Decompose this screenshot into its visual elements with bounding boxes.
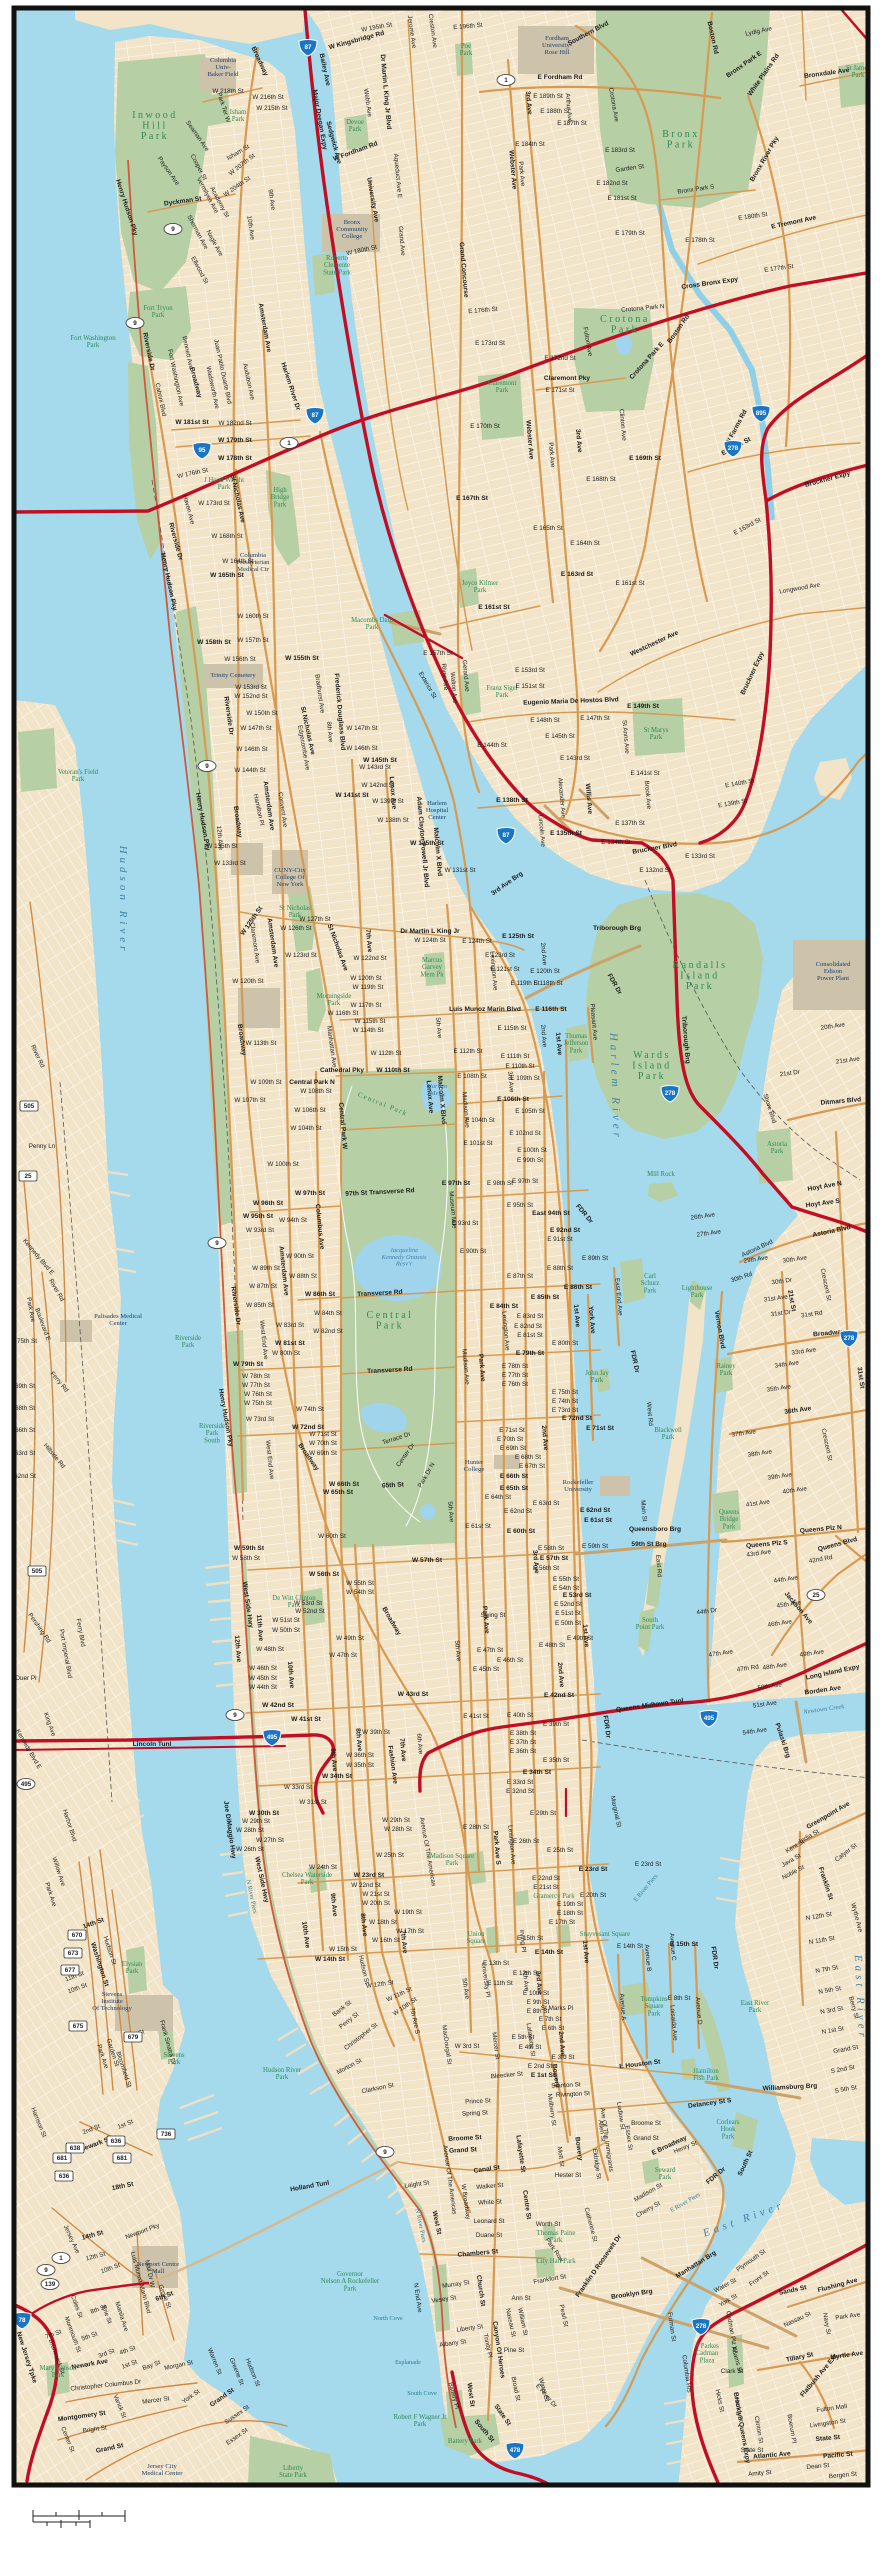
map-label: E 100th St	[517, 1147, 547, 1154]
map-label: E 38th St	[510, 1730, 536, 1737]
svg-text:87: 87	[502, 832, 510, 839]
map-label: W 28th St	[384, 1826, 412, 1833]
map-label: W 100th St	[267, 1161, 298, 1168]
map-label: E 168th St	[586, 476, 616, 483]
map-label: W 165th St	[210, 572, 245, 579]
map-label: W 83rd St	[276, 1322, 304, 1329]
map-label: E 135th St	[550, 830, 583, 837]
map-label: Stuyvesant Square	[580, 1931, 630, 1938]
map-label: E 148th St	[530, 717, 560, 724]
map-label: W 30th St	[249, 1810, 280, 1817]
svg-text:636: 636	[111, 2138, 122, 2145]
map-label: E 189th St	[533, 93, 563, 100]
map-label: E 62nd St	[504, 1508, 532, 1515]
route-shield-1: 1	[280, 438, 298, 449]
svg-text:638: 638	[70, 2145, 81, 2152]
svg-text:478: 478	[510, 2447, 521, 2454]
map-label: E 54th St	[553, 1585, 579, 1592]
map-label: W 73rd St	[246, 1416, 274, 1423]
route-shield-9: 9	[198, 761, 216, 772]
svg-text:278: 278	[665, 1090, 676, 1097]
map-label: W 131st St	[445, 867, 476, 874]
map-label: W 110th St	[376, 1067, 410, 1074]
map-label: E 182nd St	[596, 180, 627, 187]
map-label: W 146th St	[346, 745, 377, 752]
map-label: E 112th St	[454, 1048, 483, 1055]
map-label: W 86th St	[305, 1291, 336, 1298]
map-label: Penny Ln	[29, 1143, 56, 1150]
map-label: E 132nd St	[639, 867, 670, 874]
map-label: W 19th St	[394, 1909, 422, 1916]
map-label: MarcusGarveyMem Pk	[420, 957, 444, 978]
map-label: E 52nd St	[554, 1601, 582, 1608]
map-label: W 69th St	[309, 1450, 337, 1457]
map-label: E 23rd St	[579, 1866, 608, 1873]
manhattan-map: InwoodHillParkIshamParkColumbiaUniv-Bake…	[0, 0, 882, 2560]
map-label: E 37th St	[510, 1739, 536, 1746]
svg-text:78: 78	[18, 2317, 26, 2324]
map-label: E 99th St	[517, 1157, 543, 1164]
svg-text:9: 9	[44, 2267, 48, 2274]
map-label: W 26th St	[236, 1846, 264, 1853]
map-label: W 116th St	[328, 1010, 359, 1017]
map-label: E 108th St	[457, 1073, 487, 1080]
map-label: W 156th St	[224, 656, 255, 663]
map-label: RockefellerUniversity	[563, 1479, 595, 1493]
svg-text:679: 679	[128, 2034, 139, 2041]
map-label: W 77th St	[242, 1382, 270, 1389]
map-label: Hester St	[555, 2172, 581, 2179]
park-gramercy	[515, 1890, 529, 1906]
map-label: Queensboro Brg	[629, 1526, 681, 1533]
map-label: E 95th St	[507, 1202, 533, 1209]
map-label: W 42nd St	[262, 1702, 295, 1709]
map-label: E 11th St	[487, 1980, 513, 1987]
map-label: W 71st St	[309, 1431, 337, 1438]
route-shield-1: 1	[52, 2253, 70, 2264]
map-label: E 35th St	[543, 1757, 569, 1764]
map-label: W 39th St	[362, 1729, 390, 1736]
map-label: E 64th St	[485, 1494, 511, 1501]
map-label: E 149th St	[627, 703, 660, 710]
map-label: W 139th St	[372, 798, 403, 805]
map-label: E 29th St	[530, 1810, 556, 1817]
map-label: Luis Munoz Marin Blvd	[449, 1006, 521, 1013]
map-label: W 93rd St	[246, 1227, 274, 1234]
map-label: 63rd St	[15, 1450, 36, 1457]
map-label: E 147th St	[580, 715, 610, 722]
svg-text:139: 139	[45, 2281, 56, 2288]
map-label: W 89th St	[252, 1265, 280, 1272]
map-label: W 182nd St	[219, 420, 252, 427]
map-label: Spring St	[462, 2109, 488, 2117]
map-label: Hudson River	[117, 845, 129, 955]
map-label: E 116th St	[535, 1006, 567, 1013]
map-label: W 33rd St	[284, 1784, 312, 1791]
svg-text:278: 278	[696, 2323, 707, 2330]
svg-text:95: 95	[198, 447, 206, 454]
map-label: E 78th St	[502, 1363, 528, 1370]
map-label: W 115th St	[355, 1018, 386, 1025]
svg-text:1: 1	[504, 77, 508, 84]
map-label: W 59th St	[234, 1545, 265, 1552]
map-label: E 79th St	[516, 1350, 545, 1357]
map-label: W 104th St	[290, 1125, 321, 1132]
svg-text:9: 9	[215, 1240, 219, 1247]
svg-text:677: 677	[65, 1967, 76, 1974]
map-label: 0	[31, 2498, 35, 2507]
route-shield-495: 495	[17, 1779, 35, 1790]
route-shield-9: 9	[164, 224, 182, 235]
map-label: E 74th St	[552, 1398, 578, 1405]
map-label: E 34th St	[523, 1769, 552, 1776]
map-label: E 145th St	[545, 733, 575, 740]
park-veterans-field	[18, 728, 57, 792]
map-label: W 109th St	[250, 1079, 281, 1086]
map-label: E 22nd St	[532, 1875, 560, 1882]
route-shield-505: 505	[20, 1101, 38, 1111]
map-label: W 85th St	[246, 1302, 274, 1309]
map-label: 59th St Brg	[631, 1541, 666, 1548]
block-columbia-university	[238, 988, 280, 1028]
map-label: E 161st St	[615, 580, 644, 587]
map-label: W 60th St	[318, 1533, 346, 1540]
map-label: W 14th St	[315, 1956, 346, 1963]
map-label: E 61st St	[465, 1523, 491, 1530]
map-label: W 179th St	[218, 437, 253, 444]
map-label: E 33rd St	[507, 1779, 534, 1786]
map-label: W 122nd St	[354, 955, 387, 962]
svg-text:681: 681	[57, 2155, 68, 2162]
map-label: E 138th St	[496, 797, 529, 804]
map-label: E 144th St	[477, 742, 507, 749]
map-label: Ann St	[512, 2295, 531, 2302]
map-label: HarlemHospitalCenter	[426, 800, 449, 821]
svg-text:278: 278	[728, 445, 739, 452]
map-label: E 62nd St	[580, 1507, 611, 1514]
route-shield-673: 673	[64, 1948, 82, 1958]
map-label: RobertoClementeState Park	[323, 255, 351, 276]
map-label: W 113th St	[246, 1040, 277, 1047]
map-label: Clark St	[721, 2368, 744, 2375]
map-label: E 71st St	[499, 1427, 525, 1434]
map-label: Battery Park	[448, 2438, 483, 2445]
map-label: E 81st St	[517, 1332, 543, 1339]
map-label: E 59th St	[582, 1543, 608, 1550]
svg-text:495: 495	[21, 1781, 32, 1788]
map-label: E 36th St	[510, 1748, 536, 1755]
route-shield-25: 25	[19, 1171, 37, 1181]
map-label: W 47th St	[329, 1652, 357, 1659]
map-label: E 48th St	[539, 1642, 565, 1649]
map-label: E 153rd St	[515, 667, 545, 674]
map-label: W 82nd St	[313, 1328, 343, 1335]
map-label: W 146th St	[236, 746, 267, 753]
map-label: E 184th St	[515, 141, 545, 148]
map-label: DevoePark	[346, 119, 364, 133]
route-shield-736: 736	[157, 2129, 175, 2139]
map-label: W 25th St	[376, 1852, 404, 1859]
svg-text:673: 673	[68, 1950, 79, 1957]
svg-text:670: 670	[72, 1932, 83, 1939]
map-label: Claremont Pky	[544, 375, 591, 382]
map-label: W 143rd St	[359, 764, 391, 771]
map-label: E 23rd St	[635, 1861, 662, 1868]
map-label: E 2nd St	[528, 2063, 552, 2070]
map-label: E 115th St	[498, 1025, 527, 1032]
map-label: E 179th St	[615, 230, 645, 237]
map-label: E 70th St	[497, 1436, 523, 1443]
map-label: E 86th St	[564, 1284, 593, 1291]
svg-text:9: 9	[133, 320, 137, 327]
map-label: E 42nd St	[544, 1692, 575, 1699]
map-label: W 66th St	[329, 1481, 360, 1488]
map-label: W 84th St	[314, 1310, 342, 1317]
map-label: W 54th St	[346, 1589, 374, 1596]
map-label: E 151st St	[515, 683, 544, 690]
map-label: E 125th St	[502, 933, 535, 940]
map-label: E 92nd St	[550, 1227, 581, 1234]
map-label: W 29th St	[382, 1817, 410, 1824]
map-label: W 70th St	[309, 1440, 337, 1447]
map-label: E 169th St	[629, 455, 662, 462]
map-label: Duer Pl	[16, 1675, 37, 1682]
map-label: W 112th St	[371, 1050, 402, 1057]
map-label: E 53rd St	[563, 1592, 592, 1599]
map-label: E 68th St	[515, 1454, 541, 1461]
map-label: Prince St	[465, 2097, 491, 2105]
map-label: Grand St	[449, 2146, 478, 2154]
map-label: W 51st St	[272, 1617, 300, 1624]
route-shield-636: 636	[55, 2171, 73, 2181]
map-label: E 133rd St	[685, 853, 715, 860]
svg-text:736: 736	[161, 2131, 172, 2138]
route-shield-505: 505	[28, 1566, 46, 1576]
map-label: E 106th St	[497, 1096, 530, 1103]
svg-text:675: 675	[73, 2023, 84, 2030]
route-shield-638: 638	[66, 2143, 84, 2153]
map-label: W 49th St	[336, 1635, 364, 1642]
map-label: E 77th St	[502, 1372, 528, 1379]
map-label: E 18th St	[557, 1910, 583, 1917]
map-label: E 118th St	[534, 980, 563, 987]
map-label: W 56th St	[309, 1571, 340, 1578]
route-shield-636: 636	[107, 2136, 125, 2146]
svg-text:495: 495	[267, 1734, 278, 1741]
map-label: E 87th St	[507, 1273, 533, 1280]
map-label: E 167th St	[456, 495, 489, 502]
map-label: W 216th St	[252, 94, 283, 101]
map-label: E 93rd St	[452, 1220, 479, 1227]
park-stuyvesant	[556, 1924, 571, 1948]
svg-text:505: 505	[24, 1103, 35, 1110]
svg-text:9: 9	[171, 226, 175, 233]
map-label: E 25th St	[547, 1847, 573, 1854]
map-label: E 163rd St	[561, 571, 594, 578]
map-label: E 90th St	[460, 1248, 486, 1255]
park-astoria	[756, 1128, 793, 1184]
route-shield-139: 139	[41, 2279, 59, 2290]
map-label: W 21st St	[362, 1891, 390, 1898]
map-label: St Marks Pl	[541, 2005, 573, 2012]
map-label: W 74th St	[296, 1406, 324, 1413]
map-label: W 215th St	[256, 105, 287, 112]
map-label: North Cove	[373, 2315, 403, 2322]
map-label: W 158th St	[197, 639, 232, 646]
map-label: E 80th St	[552, 1340, 578, 1347]
map-label: W 90th St	[286, 1253, 314, 1260]
map-label: W 55th St	[346, 1580, 374, 1587]
map-label: Cathedral Pky	[320, 1067, 364, 1074]
map-label: E 124th St	[462, 938, 492, 945]
map-label: E 134th St	[601, 839, 631, 846]
map-label: E 120th St	[530, 968, 560, 975]
map-label: E 102nd St	[509, 1130, 540, 1137]
map-label: Esplanade	[395, 2359, 421, 2366]
map-label: East 94th St	[532, 1210, 571, 1217]
map-label: W 45th St	[249, 1675, 277, 1682]
map-label: E 97th St	[442, 1180, 471, 1187]
map-label: E 89th St	[582, 1255, 608, 1262]
svg-text:278: 278	[844, 1335, 855, 1342]
route-shield-681: 681	[113, 2153, 131, 2163]
map-label: W 23rd St	[354, 1872, 385, 1879]
map-label: W 29th St	[242, 1818, 270, 1825]
map-label: W 126th St	[280, 925, 311, 932]
map-label: E 181st St	[607, 195, 636, 202]
map-label: W 24th St	[309, 1864, 337, 1871]
map-label: W 155th St	[285, 655, 320, 662]
map-label: W 120th St	[350, 975, 381, 982]
svg-text:9: 9	[233, 1712, 237, 1719]
route-shield-677: 677	[61, 1965, 79, 1975]
map-label: E 161st St	[478, 604, 510, 611]
route-shield-25: 25	[807, 1590, 825, 1601]
map-label: E 39th St	[543, 1721, 569, 1728]
map-label: White St	[478, 2198, 502, 2206]
map-label: Dr Martin L King Jr	[400, 928, 460, 935]
map-label: 69th St	[15, 1383, 35, 1390]
map-label: W 94th St	[279, 1217, 307, 1224]
map-label: W 168th St	[211, 533, 242, 540]
map-label: 62nd St	[14, 1473, 36, 1480]
map-label: E 97th St	[512, 1178, 538, 1185]
map-label: E 21st St	[533, 1884, 559, 1891]
map-label: W 145th St	[363, 757, 398, 764]
map-label: Leonard St	[474, 2218, 505, 2225]
map-label: W 78th St	[242, 1373, 270, 1380]
map-label: E 14th St	[617, 1943, 643, 1950]
map-label: W 123rd St	[285, 952, 317, 959]
map-label: W 114th St	[353, 1027, 384, 1034]
route-shield-675: 675	[69, 2021, 87, 2031]
route-shield-9: 9	[126, 318, 144, 329]
svg-text:505: 505	[32, 1568, 43, 1575]
route-shield-670: 670	[68, 1930, 86, 1940]
map-label: W 181st St	[175, 419, 209, 426]
map-label: W 15th St	[329, 1946, 357, 1953]
map-label: E 76th St	[502, 1381, 528, 1388]
route-shield-681: 681	[53, 2153, 71, 2163]
map-label: E 143rd St	[560, 755, 590, 762]
map-label: E 101st St	[463, 1140, 492, 1147]
map-label: W 44th St	[249, 1684, 277, 1691]
map-label: E 60th St	[507, 1528, 536, 1535]
map-label: 0.25	[72, 2498, 87, 2507]
map-label: E 141st St	[630, 770, 659, 777]
block-rockefeller-university	[600, 1476, 630, 1496]
map-label: HunterCollege	[464, 1459, 485, 1473]
map-label: E 40th St	[507, 1712, 533, 1719]
map-label: E 45th St	[473, 1666, 499, 1673]
map-label: E 28th St	[463, 1824, 489, 1831]
map-label: E 88th St	[547, 1265, 573, 1272]
map-label: W 96th St	[253, 1200, 284, 1207]
map-label: E 75th St	[552, 1389, 578, 1396]
map-label: E 82nd St	[514, 1323, 542, 1330]
map-label: W 87th St	[249, 1283, 277, 1290]
map-label: W 144th St	[234, 767, 265, 774]
map-label: E 20th St	[580, 1892, 606, 1899]
map-label: E 183rd St	[605, 147, 635, 154]
map-label: Worth St	[536, 2221, 561, 2228]
map-label: E 172nd St	[544, 355, 575, 362]
svg-text:25: 25	[24, 1173, 32, 1180]
map-label: E 165th St	[533, 525, 563, 532]
map-label: 66th St	[15, 1427, 35, 1434]
map-label: E 110th St	[506, 1063, 535, 1070]
map-label: W 127th St	[299, 916, 330, 923]
the-pond	[420, 1504, 436, 1520]
map-label: E 14th St	[535, 1949, 564, 1956]
map-label: BronxPark	[662, 129, 700, 151]
map-label: W 157th St	[237, 637, 268, 644]
map-label: W 164th St	[222, 558, 253, 565]
map-label: 0	[31, 2533, 35, 2542]
map-label: South Cove	[407, 2390, 437, 2397]
map-page: InwoodHillParkIshamParkColumbiaUniv-Bake…	[0, 0, 882, 2560]
map-label: 68th St	[15, 1405, 35, 1412]
map-label: Mill Rock	[647, 1171, 675, 1178]
map-label: W 50th St	[272, 1627, 300, 1634]
svg-text:1: 1	[59, 2255, 63, 2262]
svg-text:9: 9	[383, 2149, 387, 2156]
map-label: W 43rd St	[398, 1691, 429, 1698]
map-label: E 26th St	[513, 1838, 539, 1845]
map-label: 0.25	[55, 2533, 70, 2542]
map-label: E 57th St	[540, 1555, 569, 1562]
map-label: E 50th St	[555, 1620, 581, 1627]
map-label: W 147th St	[240, 725, 271, 732]
map-label: W 95th St	[243, 1213, 274, 1220]
map-label: E 105th St	[515, 1108, 545, 1115]
scale-bar	[33, 2510, 125, 2528]
svg-text:895: 895	[756, 410, 767, 417]
svg-text:1: 1	[287, 440, 291, 447]
map-label: E 47th St	[477, 1647, 503, 1654]
map-label: E 66th St	[500, 1473, 529, 1480]
map-label: W 41st St	[291, 1716, 321, 1723]
map-label: E 137th St	[615, 820, 645, 827]
map-label: W 31st St	[299, 1799, 327, 1806]
map-label: 0.5 Mile	[119, 2498, 145, 2507]
park-central	[341, 1068, 456, 1548]
svg-text:681: 681	[117, 2155, 128, 2162]
map-label: 0.5 KM	[88, 2533, 112, 2542]
map-label: W 97th St	[295, 1190, 326, 1197]
route-shield-9: 9	[376, 2147, 394, 2158]
map-label: Duane St	[476, 2232, 503, 2239]
